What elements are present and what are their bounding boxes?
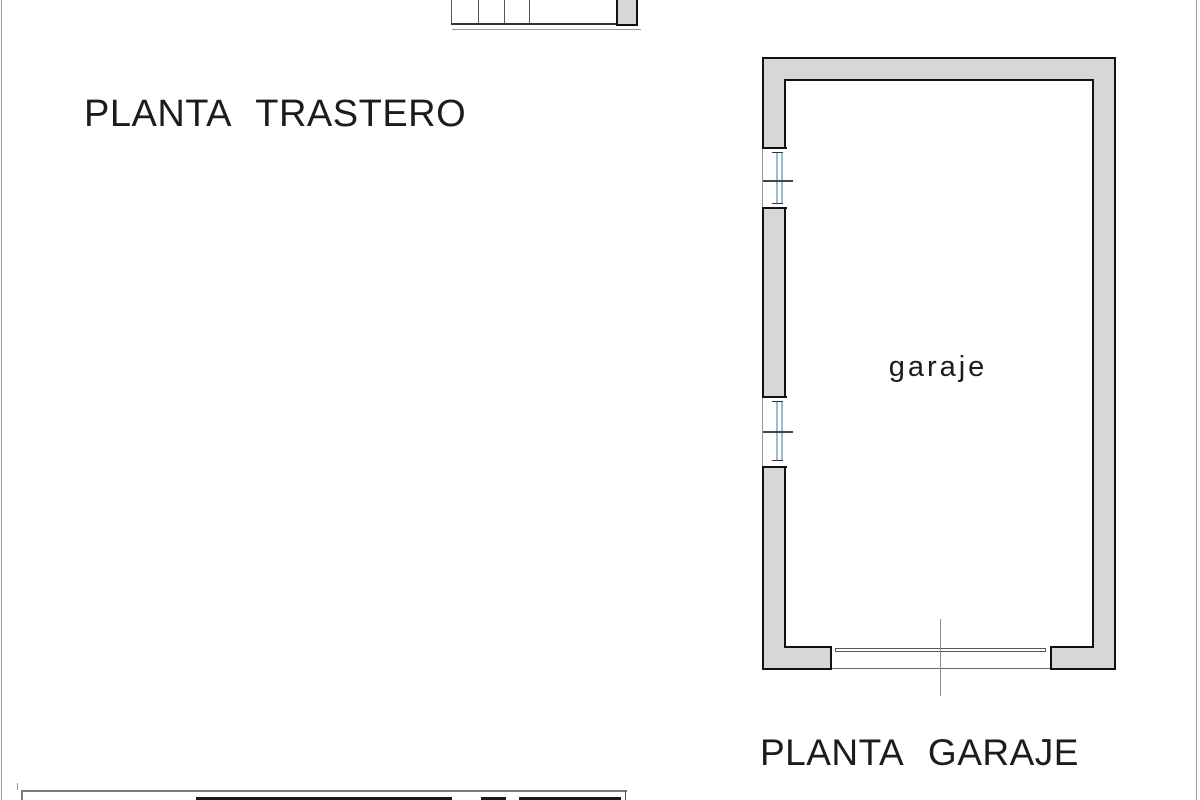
window-2-top-jamb [762,396,787,398]
window-2-bottom-jamb [762,466,787,468]
bottom-fragment-left-line [21,790,23,800]
trastero-title: PLANTA TRASTERO [84,93,466,136]
window-1-glass-line [776,153,778,203]
elevation-divider-line [478,0,479,24]
elevation-ground-line [452,29,641,30]
window-2-end-tick [772,401,783,402]
window-2-center-tick [763,431,793,433]
bottom-fragment-right-line [625,790,626,800]
elevation-base-line [451,23,637,25]
bottom-fragment-tick [17,783,18,790]
window-1-bottom-jamb [762,207,787,209]
window-1-outer-face-line [762,149,763,207]
elevation-divider-line [451,0,452,24]
bottom-fragment-top-line [21,790,627,792]
drawing-sheet: PLANTA TRASTERO [0,0,1200,800]
garaje-title: PLANTA GARAJE [760,732,1079,774]
page-left-border-line [1,0,2,800]
elevation-corner-block [616,0,638,26]
door-right-jamb [1050,646,1052,670]
garage-room-label: garaje [858,351,1018,384]
elevation-divider-line [529,0,530,24]
page-right-border-line [1196,0,1197,800]
window-2-end-tick [772,460,783,461]
door-outer-face-line [832,668,1050,669]
window-1-glass-line [781,153,783,203]
door-centerline [940,619,941,696]
window-1-end-tick [772,203,783,204]
window-1-center-tick [763,180,793,182]
door-left-jamb [830,646,832,670]
window-1-end-tick [772,152,783,153]
elevation-divider-line [504,0,505,24]
window-1-top-jamb [762,147,787,149]
